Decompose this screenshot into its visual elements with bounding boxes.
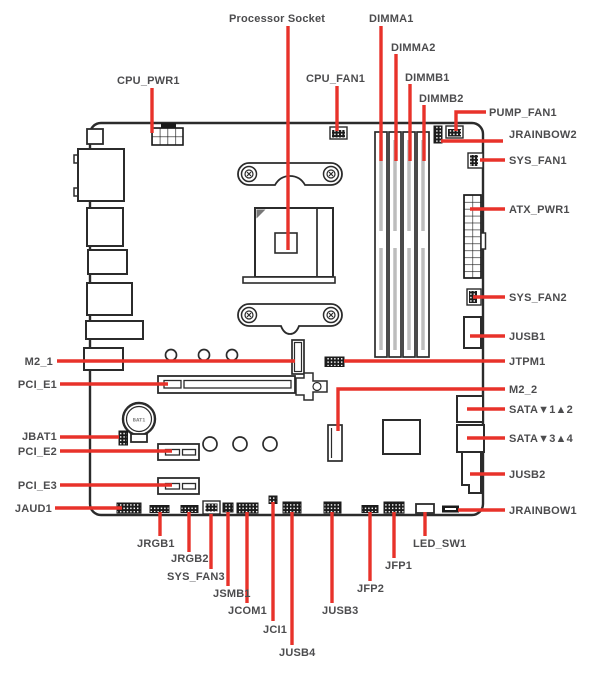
sys-fan3-pins: [206, 504, 218, 512]
label-jci1: JCI1: [263, 624, 287, 636]
label-jfp1: JFP1: [385, 560, 412, 572]
label-pci-e2: PCI_E2: [18, 446, 57, 458]
label-processor-socket: Processor Socket: [229, 13, 325, 25]
label-atx-pwr1: ATX_PWR1: [509, 204, 570, 216]
battery-label: BAT1: [133, 418, 146, 424]
atx-pwr1-clip: [481, 233, 486, 249]
cpu-die: [275, 233, 297, 253]
mounting-hole: [227, 350, 238, 361]
label-jusb4: JUSB4: [279, 647, 316, 659]
io-port-3: [88, 250, 127, 274]
chipset: [383, 420, 420, 454]
label-jsmb1: JSMB1: [213, 588, 251, 600]
label-jusb3: JUSB3: [322, 605, 358, 617]
label-sata-1-2: SATA▼1▲2: [509, 404, 573, 416]
socket-lever-bar: [243, 277, 335, 283]
label-jfp2: JFP2: [357, 583, 384, 595]
label-pci-e3: PCI_E3: [18, 480, 57, 492]
label-jrainbow1: JRAINBOW1: [509, 505, 577, 517]
jfp1-connector: [384, 502, 404, 513]
label-jbat1: JBAT1: [22, 431, 57, 443]
cmos-battery-clip: [131, 434, 147, 442]
cpu-fan1-pins: [332, 130, 345, 138]
m2-2-slot: [328, 425, 342, 461]
label-jcom1: JCOM1: [228, 605, 267, 617]
jusb1-connector: [464, 317, 481, 348]
label-jrgb2: JRGB2: [171, 553, 209, 565]
label-jusb1: JUSB1: [509, 331, 545, 343]
jrainbow2-connector: [434, 126, 442, 143]
label-dimmb2: DIMMB2: [419, 93, 464, 105]
mounting-hole: [233, 437, 247, 451]
label-sys-fan1: SYS_FAN1: [509, 155, 567, 167]
label-sata-3-4: SATA▼3▲4: [509, 433, 574, 445]
io-port-2: [87, 208, 123, 246]
label-cpu-fan1: CPU_FAN1: [306, 73, 365, 85]
pci-e1-slot: [158, 376, 295, 393]
jtpm1-connector: [325, 357, 344, 367]
label-pci-e1: PCI_E1: [18, 379, 57, 391]
jfp2-connector: [362, 506, 378, 513]
io-port-5: [86, 321, 143, 339]
motherboard-diagram: BAT1: [0, 0, 600, 674]
mounting-hole: [199, 350, 210, 361]
io-port-4: [87, 283, 132, 315]
label-jusb2: JUSB2: [509, 469, 545, 481]
cpu-pwr1-connector: [152, 128, 183, 145]
jrainbow1-slot-stripe: [445, 508, 456, 510]
jusb4-connector: [283, 502, 301, 513]
label-m2-2: M2_2: [509, 384, 537, 396]
led-sw1-connector: [416, 504, 434, 513]
label-jrainbow2: JRAINBOW2: [509, 129, 577, 141]
label-sys-fan2: SYS_FAN2: [509, 292, 567, 304]
label-m2-1: M2_1: [25, 356, 53, 368]
m2-1-slot: [292, 340, 304, 374]
mounting-hole: [203, 437, 217, 451]
jsmb1-connector: [223, 503, 233, 512]
jrgb2-connector: [181, 506, 198, 513]
io-port-6: [84, 348, 123, 370]
label-pump-fan1: PUMP_FAN1: [489, 107, 557, 119]
label-cpu-pwr1: CPU_PWR1: [117, 75, 180, 87]
sys-fan1-pins: [470, 155, 478, 166]
mounting-hole: [263, 437, 277, 451]
label-dimma1: DIMMA1: [369, 13, 414, 25]
io-lan-port: [78, 149, 124, 201]
io-port-small: [87, 129, 103, 144]
jusb3-connector: [324, 502, 341, 513]
motherboard-diagram-svg: BAT1: [0, 0, 600, 674]
jcom1-connector: [237, 503, 258, 513]
label-jtpm1: JTPM1: [509, 356, 545, 368]
jbat1-connector: [119, 431, 128, 445]
label-jaud1: JAUD1: [15, 503, 52, 515]
label-jrgb1: JRGB1: [137, 538, 175, 550]
label-dimma2: DIMMA2: [391, 42, 436, 54]
label-led-sw1: LED_SW1: [413, 538, 466, 550]
jrgb1-connector: [150, 506, 169, 513]
label-dimmb1: DIMMB1: [405, 72, 450, 84]
label-sys-fan3: SYS_FAN3: [167, 571, 225, 583]
mounting-hole: [166, 350, 177, 361]
